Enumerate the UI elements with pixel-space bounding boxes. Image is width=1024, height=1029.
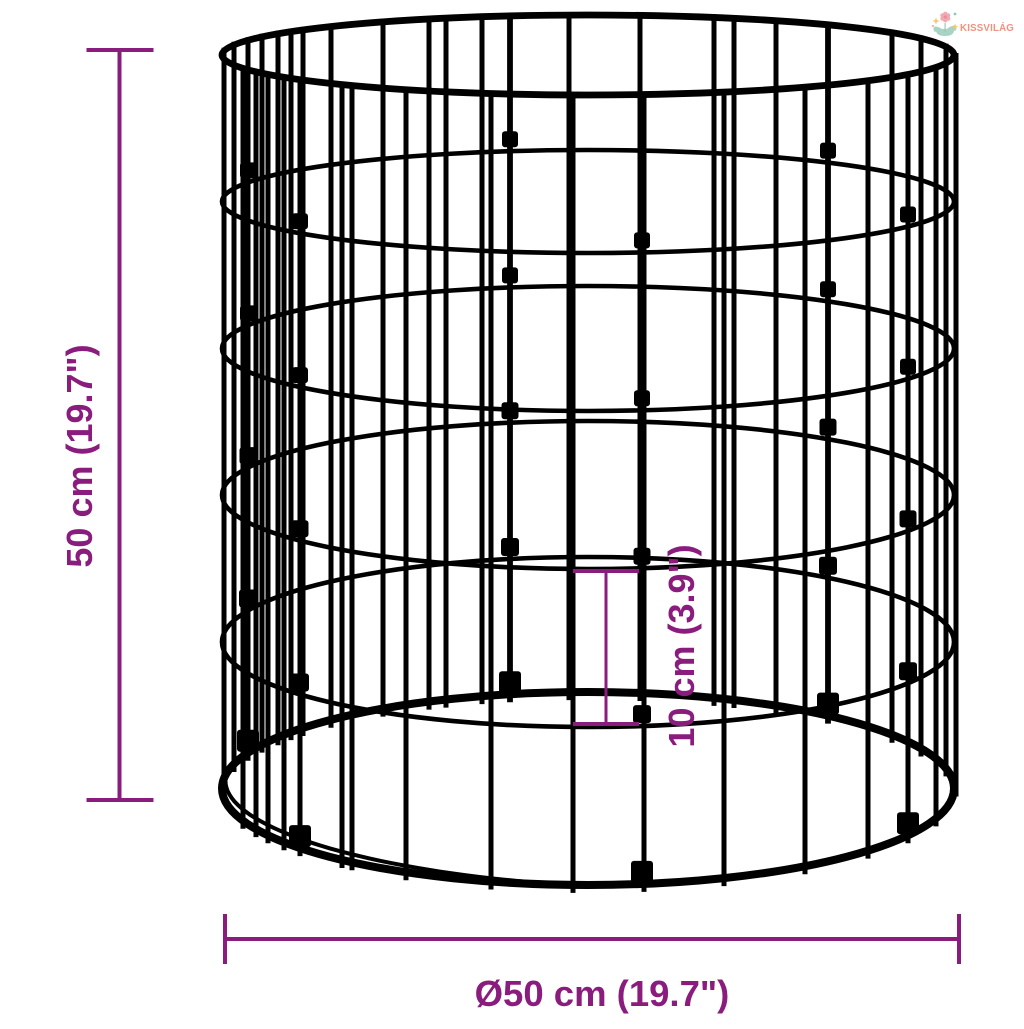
- svg-text:KISSVILÁG: KISSVILÁG: [960, 23, 1014, 34]
- svg-text:50 cm (19.7"): 50 cm (19.7"): [59, 344, 100, 567]
- svg-text:Ø50 cm (19.7"): Ø50 cm (19.7"): [475, 973, 730, 1014]
- svg-text:10 cm (3.9"): 10 cm (3.9"): [661, 544, 702, 747]
